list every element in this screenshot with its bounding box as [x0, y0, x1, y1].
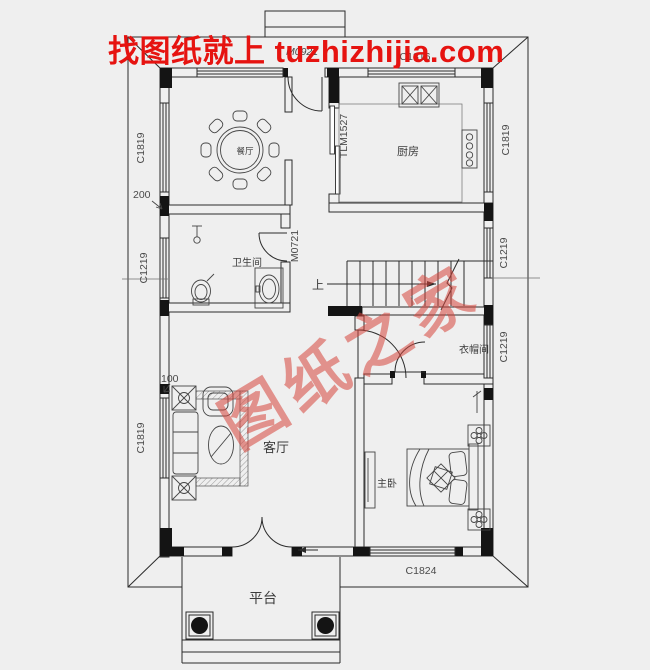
- porch-column-right: [312, 612, 339, 639]
- stairs-up-label: 上: [312, 278, 324, 292]
- shower-head-icon: [192, 226, 202, 243]
- stove: [462, 130, 477, 168]
- bed: [407, 444, 478, 510]
- window-label-left-top: C1819: [135, 132, 147, 163]
- window-top-kitchen: [368, 68, 455, 77]
- room-label-bathroom: 卫生间: [232, 256, 262, 269]
- back-door-swing: [288, 77, 322, 111]
- tv-cabinet: [365, 452, 375, 508]
- corner-table-bottom: [172, 476, 196, 500]
- dim-100: 100: [161, 373, 179, 385]
- watermark-top: 找图纸就上 tuzhizhijia.com: [108, 34, 504, 69]
- corner-table-top: [172, 386, 196, 410]
- window-label-left-bottom: C1819: [135, 422, 147, 453]
- bathroom-door-swing: [259, 233, 287, 261]
- dim-200: 200: [133, 189, 151, 201]
- window-label-right-top: C1819: [500, 124, 512, 155]
- window-label-right-middle: C1219: [498, 237, 510, 268]
- wall-break-mark: [473, 391, 481, 413]
- room-label-platform: 平台: [249, 590, 277, 606]
- toilet: [192, 274, 215, 305]
- window-right-stairs: [484, 228, 493, 278]
- window-left-dining: [160, 103, 169, 192]
- kitchen-sink: [399, 83, 439, 107]
- porch: [182, 557, 340, 663]
- window-label-bottom-bedroom: C1824: [406, 565, 437, 577]
- window-label-right-lower: C1219: [498, 331, 510, 362]
- window-left-living: [160, 398, 169, 478]
- room-label-kitchen: 厨房: [397, 145, 419, 158]
- window-right-kitchen: [484, 103, 493, 192]
- sofa-three-seat: [173, 412, 198, 474]
- entrance-double-door: [232, 517, 318, 553]
- window-bottom-bedroom: [370, 547, 455, 556]
- door-label-kitchen-sliding: TLM1527: [338, 114, 350, 159]
- room-label-bedroom: 主卧: [377, 477, 397, 490]
- window-label-left-middle: C1219: [138, 252, 150, 283]
- floor-plan: 餐厅 厨房 卫生间 客厅 主卧 衣帽间 平台 上 C1819 C1219 C18…: [0, 0, 650, 670]
- room-label-dining: 餐厅: [236, 146, 254, 156]
- door-label-bathroom: M0721: [289, 230, 301, 262]
- window-top-dining: [197, 68, 283, 77]
- porch-column-left: [186, 612, 213, 639]
- vanity-sink: [255, 268, 283, 308]
- watermark-diagonal: 图纸之家: [208, 252, 492, 462]
- window-left-bathroom: [160, 238, 169, 298]
- room-label-cloakroom: 衣帽间: [459, 343, 489, 356]
